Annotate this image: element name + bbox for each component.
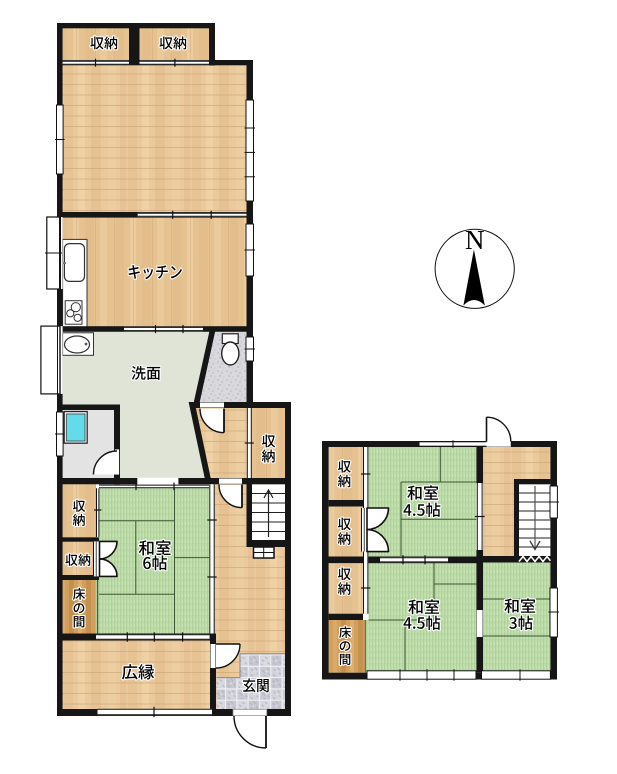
svg-text:N: N xyxy=(465,225,485,255)
